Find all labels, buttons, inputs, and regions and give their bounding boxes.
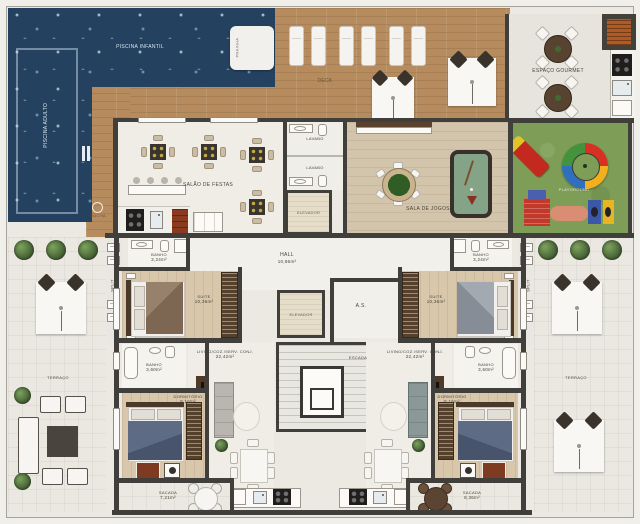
games-room-label: SALA DE JOGOS (392, 206, 464, 213)
umbrella-shadow (472, 84, 473, 104)
chair (192, 147, 198, 157)
elevator-2: ELEVADOR (277, 290, 325, 338)
tunnel-hole (605, 207, 611, 217)
armchair (67, 468, 88, 485)
umbrella-table (372, 77, 414, 119)
bush-icon (78, 240, 98, 260)
washer (164, 463, 180, 478)
wall (406, 480, 410, 514)
umbrella-table (552, 282, 602, 334)
chair (230, 452, 238, 464)
umbrella-pole (575, 306, 579, 310)
wall (112, 510, 532, 515)
fridge (232, 489, 246, 505)
washer-drum (465, 467, 472, 474)
party-table-set (239, 189, 275, 225)
wall (114, 338, 242, 343)
gourmet-cooktop (612, 54, 632, 76)
kitchen-sink (373, 491, 387, 504)
bush-icon (570, 240, 590, 260)
wall (114, 478, 234, 483)
gourmet-cabinet (612, 100, 632, 116)
ap-right-living-label: LIVING/COZ./SERV. CONJ. 22,42m² (380, 349, 450, 360)
play-cube-red (524, 198, 550, 226)
ap-right-balcony-label: SACADA 8,36m² (452, 490, 492, 501)
balcony-table (194, 487, 218, 511)
lavabo-2-label: LAVABO (287, 165, 343, 170)
games-counter (356, 127, 432, 134)
kids-pool-label: PISCINA INFANTIL (100, 44, 180, 51)
wall (450, 267, 526, 271)
pillow (497, 309, 508, 330)
chair (252, 190, 262, 196)
bed-blanket (128, 421, 182, 460)
sun-lounger (361, 26, 376, 66)
chair (141, 147, 147, 157)
carousel-icon (562, 143, 608, 189)
outdoor-sofa (18, 417, 39, 474)
dining-table (374, 449, 402, 483)
umbrella-shadow (577, 311, 578, 331)
toilet (165, 346, 175, 358)
party-shelf (193, 212, 223, 232)
shower-label: DUCHA (80, 213, 116, 218)
chair (364, 467, 372, 479)
ap-left-bedroom-label: DORMITÓRIO 8,16m² (158, 394, 218, 405)
wall (113, 118, 118, 238)
sun-lounger (411, 26, 426, 66)
nightstand (126, 273, 136, 279)
toilet (465, 346, 475, 358)
sun-lounger (339, 26, 354, 66)
pillow (497, 286, 508, 307)
window (520, 408, 527, 450)
bath-sink (149, 347, 161, 354)
round-table (544, 35, 572, 63)
pillow (131, 409, 155, 420)
nightstand (504, 273, 514, 279)
wall (230, 480, 234, 514)
ap-right-bedroom-label: DORMITÓRIO 8,16m² (422, 394, 482, 405)
wall (406, 478, 526, 483)
bush-icon (14, 240, 34, 260)
wall (398, 338, 526, 343)
umbrella-shadow (61, 311, 62, 331)
playground-label: PLAYGROUND (536, 187, 612, 192)
bath-sink (493, 242, 504, 247)
umbrella-pole (59, 306, 63, 310)
gourmet-table-set (537, 77, 577, 117)
cue-stick (464, 160, 474, 185)
chair (401, 452, 409, 464)
toilet (471, 240, 480, 252)
bush-icon (14, 387, 31, 404)
chair (153, 163, 163, 169)
armchair (42, 468, 63, 485)
washer (460, 463, 476, 478)
chair (252, 218, 262, 224)
terrace-right-label: TERRAÇO (548, 375, 604, 380)
pool-ladder (82, 146, 85, 161)
bush-icon (602, 240, 622, 260)
sun-lounger (311, 26, 326, 66)
ap-left-balcony-label: SACADA 7,21m² (148, 490, 188, 501)
floor-plan: DECK DUCHA PRAINHA PISCINA INFANTIL PISC… (0, 0, 640, 524)
chair (240, 150, 246, 160)
kitchen-stove (349, 489, 367, 505)
sun-lounger (389, 26, 404, 66)
chair (169, 147, 175, 157)
ap-left-suite-label: SUITE 10,36m² (184, 294, 224, 305)
coffee-table (47, 426, 78, 457)
chair (252, 138, 262, 144)
armchair (40, 396, 61, 413)
carousel-hub (583, 164, 587, 168)
ap-right-suite-bath-label: BANHO 3,24m² (453, 252, 509, 263)
wall (330, 278, 334, 342)
hall-label: HALL 10,86m² (250, 252, 324, 264)
dining-table (240, 449, 268, 483)
party-cabinet (172, 209, 188, 233)
pillow (134, 309, 145, 330)
party-room-label: SALÃO DE FESTAS (170, 182, 246, 189)
pillow (157, 409, 181, 420)
window (138, 117, 186, 123)
bath-sink (479, 347, 491, 354)
chair (247, 439, 259, 447)
round-table (544, 84, 572, 112)
ap-left-suite-bath-label: BANHO 3,24m² (131, 252, 187, 263)
rug (380, 402, 407, 431)
lavabo-1-label: LAVABO (287, 136, 343, 141)
chair (204, 163, 214, 169)
bed-blanket (146, 282, 183, 334)
pillow (487, 409, 511, 420)
billiard-rack (467, 196, 477, 205)
window (113, 408, 120, 450)
dresser (136, 462, 160, 479)
pillow (134, 286, 145, 307)
bed-blanket (458, 421, 512, 460)
party-table-set (239, 137, 275, 173)
bedroom-wardrobe (186, 402, 202, 460)
dining-set (227, 439, 279, 491)
bed-blanket (457, 282, 494, 334)
wall (114, 267, 190, 271)
balcony-table (424, 487, 448, 511)
ap-left-living-label: LIVING/COZ./SERV. CONJ. 22,42m² (190, 349, 260, 360)
washer-drum (169, 467, 176, 474)
toilet (318, 175, 327, 187)
lavabo-2 (287, 155, 343, 190)
wall (628, 118, 632, 238)
wall (431, 342, 435, 482)
umbrella-table (448, 58, 496, 106)
plant-icon (412, 439, 425, 452)
chair (204, 135, 214, 141)
chair (267, 467, 275, 479)
party-stove (126, 209, 144, 231)
kitchen-sink (253, 491, 267, 504)
square-table (249, 147, 265, 163)
chair (268, 202, 274, 212)
ap-right-split-label: SPLIT (525, 270, 530, 302)
square-table (249, 199, 265, 215)
window (210, 117, 258, 123)
bedroom-wardrobe (438, 402, 454, 460)
chair (240, 202, 246, 212)
prainha-label: PRAINHA (234, 28, 239, 68)
bush-icon (46, 240, 66, 260)
umbrella-pole (577, 444, 581, 448)
play-tunnel (550, 206, 588, 221)
deck-label: DECK (305, 78, 345, 85)
elevator-2-label: ELEVADOR (289, 312, 312, 317)
stool (161, 177, 168, 184)
service-shaft-room (334, 282, 398, 338)
lavabo-sink (294, 179, 306, 184)
pool-ladder (87, 146, 90, 161)
umbrella-table (36, 282, 86, 334)
shower-icon (92, 202, 103, 213)
adult-pool-label: PISCINA ADULTO (43, 95, 50, 155)
lavabo-sink (294, 126, 306, 131)
sun-lounger (289, 26, 304, 66)
party-table-set (140, 134, 176, 170)
dresser (482, 462, 506, 479)
elevator-1-label: ELEVADOR (297, 210, 320, 215)
wall (105, 233, 535, 238)
bath-sink (136, 242, 147, 247)
chair (252, 166, 262, 172)
tunnel-hole (591, 207, 598, 217)
umbrella-shadow (579, 449, 580, 469)
play-block-yellow (603, 200, 614, 224)
chair (364, 452, 372, 464)
party-sink (150, 211, 163, 229)
wall (114, 237, 119, 512)
gourmet-label: ESPAÇO GOURMET (518, 68, 598, 75)
pillow (461, 409, 485, 420)
gourmet-sink (612, 80, 632, 96)
elevator-1: ELEVADOR (285, 190, 332, 235)
ap-right-social-bath-label: BANHO 3,60m² (458, 362, 514, 373)
party-table-set (191, 134, 227, 170)
stool (147, 177, 154, 184)
square-table (150, 144, 166, 160)
window (113, 352, 120, 370)
ap-left-split-label: SPLIT (109, 270, 114, 302)
sofa (408, 382, 428, 438)
shower (452, 239, 466, 253)
wall (398, 267, 402, 343)
chair (220, 147, 226, 157)
terrace-left-label: TERRAÇO (30, 375, 86, 380)
play-block-blue (588, 200, 601, 224)
kitchen-stove (273, 489, 291, 505)
window (520, 352, 527, 370)
toilet (318, 124, 327, 136)
gourmet-table-set (537, 28, 577, 68)
armchair (65, 396, 86, 413)
wall (238, 267, 242, 343)
wall (330, 278, 402, 282)
chair (153, 135, 163, 141)
chair (268, 150, 274, 160)
square-table (201, 144, 217, 160)
wall (205, 342, 209, 482)
ap-right-suite-label: SUITE 10,36m² (416, 294, 456, 305)
rug (233, 402, 260, 431)
bbq-grill-icon (607, 19, 631, 45)
card-table (382, 168, 416, 202)
wall (114, 388, 206, 393)
chair (381, 439, 393, 447)
umbrella-pole (470, 80, 474, 84)
stair-core (310, 388, 334, 410)
wall (508, 118, 634, 123)
bush-icon (14, 473, 31, 490)
toilet (160, 240, 169, 252)
wall (508, 118, 513, 238)
service-shaft-label: A.S. (347, 303, 375, 310)
wall (434, 388, 526, 393)
stairs-label: ESCADA (340, 355, 376, 360)
card-table-set (378, 164, 418, 204)
wall (343, 122, 347, 233)
ap-left-social-bath-label: BANHO 3,60m² (126, 362, 182, 373)
sofa (214, 382, 234, 438)
bush-icon (538, 240, 558, 260)
stool (133, 177, 140, 184)
wall (505, 14, 509, 122)
umbrella-table (554, 420, 604, 472)
chair (267, 452, 275, 464)
cue-ball (470, 188, 473, 191)
